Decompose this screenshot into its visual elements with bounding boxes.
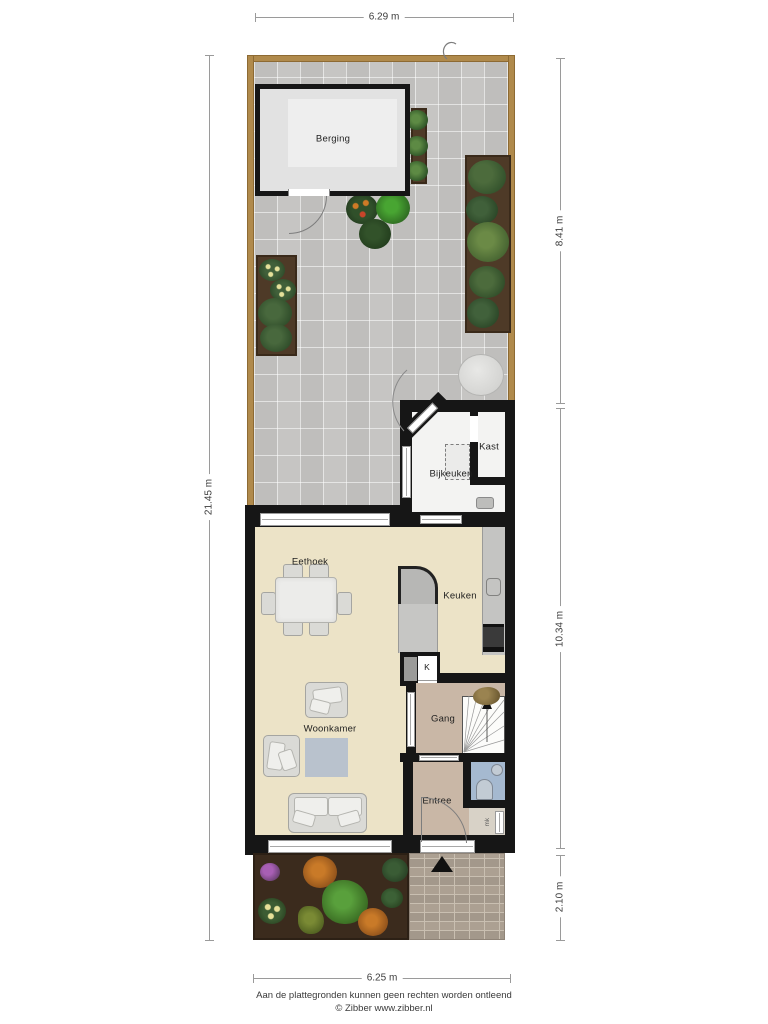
dim-tick [556,855,565,856]
dim-tick [255,13,256,22]
dim-label-house: 10.34 m [555,606,566,652]
dim-label-garden: 8.41 m [555,211,566,252]
dim-tick [556,403,565,404]
dim-label-top: 6.29 m [364,12,405,23]
floorplan-canvas: Berging Kast Bijkeuken Eethoek Keuken K [0,0,768,1024]
gate-marking-icon [443,42,456,59]
dim-tick [205,55,214,56]
dim-label-bottom: 6.25 m [362,973,403,984]
footer-credit: © Zibber www.zibber.nl [0,1003,768,1014]
dim-tick [513,13,514,22]
dim-label-front: 2.10 m [555,877,566,918]
dim-tick [556,408,565,409]
arc-overlay [0,0,768,1024]
back-door-arc [393,370,407,431]
dim-label-left: 21.45 m [204,474,215,520]
footer-disclaimer: Aan de plattegronden kunnen geen rechten… [0,990,768,1001]
dim-tick [556,940,565,941]
dim-tick [205,940,214,941]
dim-tick [556,848,565,849]
dim-tick [510,974,511,983]
dim-tick [556,58,565,59]
dim-tick [253,974,254,983]
